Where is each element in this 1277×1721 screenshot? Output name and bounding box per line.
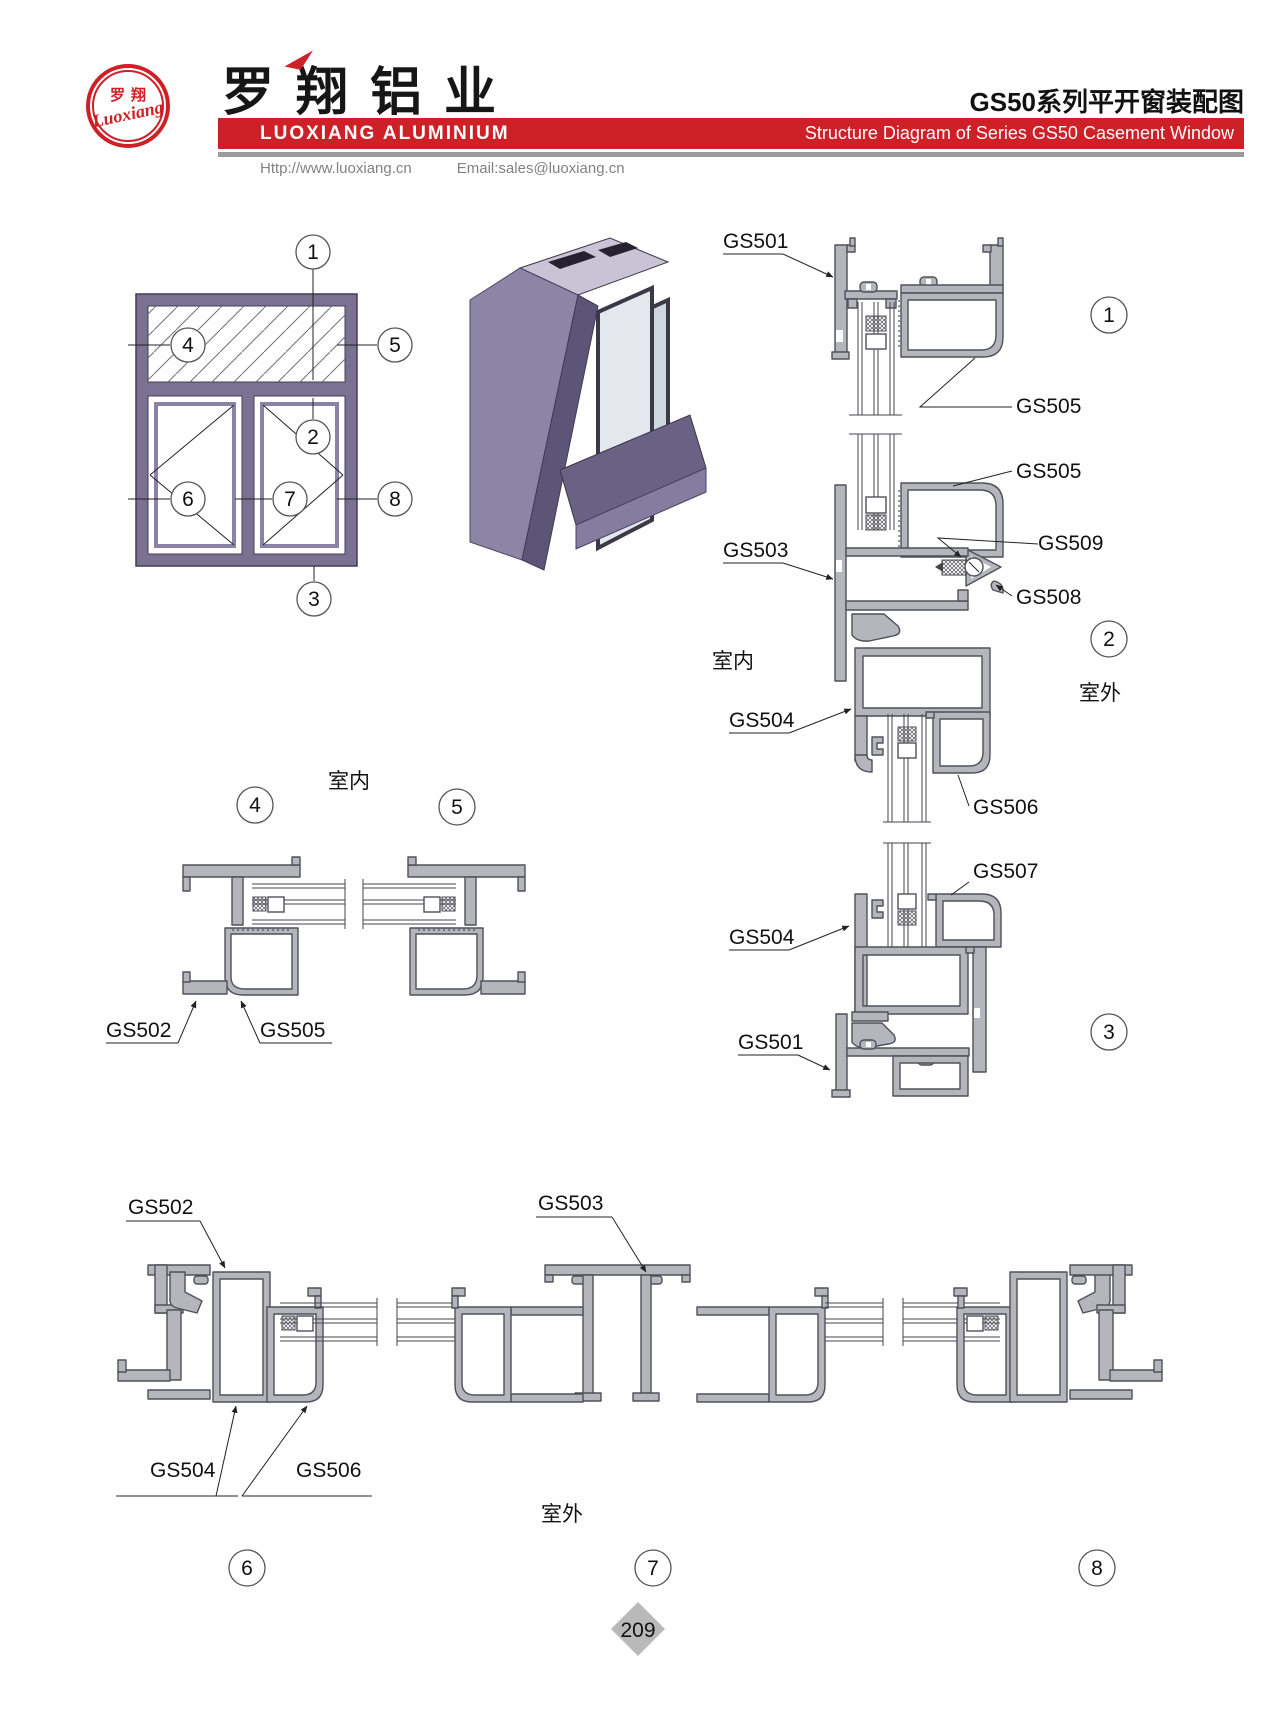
svg-text:8: 8: [389, 488, 401, 511]
left-sash-pane: [148, 396, 242, 554]
room-inside-label: 室内: [328, 769, 370, 793]
profile-3d-image: [470, 238, 706, 570]
section-label: GS505: [1016, 460, 1081, 483]
assembly-drawing: 1 4 5 2 6 7 8 3: [0, 0, 1277, 1721]
svg-text:4: 4: [249, 794, 261, 817]
section-label: GS505: [260, 1019, 325, 1042]
room-outside-label: 室外: [541, 1502, 583, 1526]
svg-text:3: 3: [1103, 1021, 1115, 1044]
section-label: GS502: [106, 1019, 171, 1042]
section-label: GS509: [1038, 532, 1103, 555]
detail-2-mullion-section: [835, 434, 1003, 843]
callout-1-elevation: 1: [296, 235, 330, 269]
section-label: GS506: [973, 796, 1038, 819]
window-elevation: 1 4 5 2 6 7 8 3: [128, 235, 412, 616]
section-label: GS501: [723, 230, 788, 253]
detail-5-jamb-section: [363, 857, 525, 995]
detail-1-head-section: [832, 238, 1003, 415]
room-outside-label: 室外: [1079, 681, 1121, 705]
section-label: GS504: [729, 926, 795, 949]
detail-7-center-mullion: [452, 1265, 828, 1402]
svg-text:5: 5: [389, 334, 401, 357]
section-label: GS501: [738, 1031, 803, 1054]
page-number-badge: 209: [611, 1602, 665, 1656]
callout-5-elevation: 5: [378, 328, 412, 362]
callout-2-elevation: 2: [296, 420, 330, 454]
spacer-block: [297, 1316, 313, 1331]
svg-text:2: 2: [307, 426, 319, 449]
svg-text:3: 3: [308, 588, 320, 611]
jamb-section-details: GS502 GS505 室内 4 5: [106, 769, 525, 1043]
svg-text:5: 5: [451, 796, 463, 819]
section-label: GS502: [128, 1196, 193, 1219]
section-label: GS508: [1016, 586, 1081, 609]
detail-8-right-jamb: [954, 1265, 1162, 1402]
callout-6-section: 6: [229, 1550, 265, 1586]
callout-4-elevation: 4: [171, 328, 205, 362]
detail-4-jamb-section: [183, 857, 363, 995]
svg-text:7: 7: [284, 488, 296, 511]
vertical-section-details: GS501 GS505 GS505 GS503 GS509 GS508 GS50…: [712, 230, 1127, 1097]
callout-8-elevation: 8: [378, 482, 412, 516]
svg-text:2: 2: [1103, 628, 1115, 651]
svg-text:6: 6: [182, 488, 194, 511]
catalog-page: 罗翔 Luoxiang 罗翔铝业 GS50系列平开窗装配图 LUOXIANG A…: [0, 0, 1277, 1721]
detail-6-left-jamb: [118, 1265, 323, 1402]
callout-3-elevation: 3: [297, 582, 331, 616]
page-number: 209: [620, 1619, 655, 1642]
svg-text:4: 4: [182, 334, 194, 357]
callout-5-section: 5: [439, 789, 475, 825]
svg-text:6: 6: [241, 1557, 253, 1580]
section-label: GS503: [723, 539, 788, 562]
callout-8-section: 8: [1079, 1550, 1115, 1586]
section-label: GS504: [729, 709, 795, 732]
callout-1-section: 1: [1091, 297, 1127, 333]
svg-text:8: 8: [1091, 1557, 1103, 1580]
section-label: GS506: [296, 1459, 361, 1482]
right-sash-pane: [254, 396, 345, 554]
svg-text:7: 7: [647, 1557, 659, 1580]
callout-2-section: 2: [1091, 621, 1127, 657]
section-label: GS505: [1016, 395, 1081, 418]
section-label: GS507: [973, 860, 1038, 883]
callout-3-section: 3: [1091, 1014, 1127, 1050]
spacer-block: [967, 1316, 983, 1331]
horizontal-assembly-section: GS502 GS503 GS504 GS506 室外 6 7 8: [116, 1192, 1162, 1586]
svg-text:1: 1: [307, 241, 319, 264]
section-label: GS504: [150, 1459, 216, 1482]
callout-7-elevation: 7: [273, 482, 307, 516]
spacer-hatch: [282, 1316, 295, 1330]
section-label: GS503: [538, 1192, 603, 1215]
callout-6-elevation: 6: [171, 482, 205, 516]
callout-4-section: 4: [237, 787, 273, 823]
svg-text:1: 1: [1103, 304, 1115, 327]
room-inside-label: 室内: [712, 649, 754, 673]
callout-7-section: 7: [635, 1550, 671, 1586]
spacer-hatch: [985, 1316, 998, 1330]
